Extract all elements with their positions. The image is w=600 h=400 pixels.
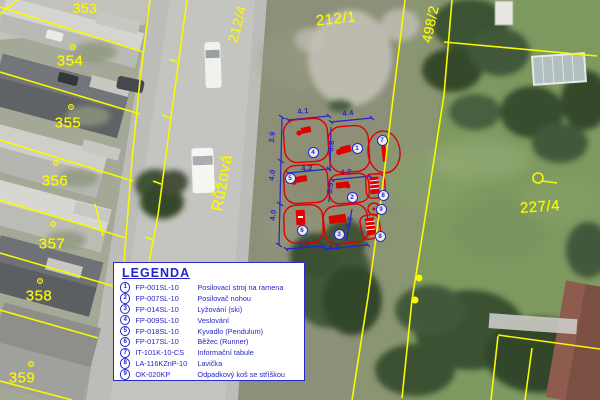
dimension-label: 4.0	[267, 169, 277, 181]
legend-item-number: 4	[120, 315, 130, 325]
parcel-centroid-dot	[39, 280, 40, 281]
parcel-line	[124, 0, 150, 262]
legend-item-number: 7	[120, 348, 130, 358]
legend-item-number: 9	[120, 369, 130, 379]
parcel-label-356: 356	[42, 173, 69, 190]
parcel-centroid-dot	[55, 162, 56, 163]
parcel-centroid-dot	[70, 106, 71, 107]
parcel-line	[0, 310, 98, 338]
map-item-number-9: 9	[376, 204, 387, 215]
parcel-label-359: 359	[9, 370, 36, 387]
dimension-label: 4.4	[342, 108, 354, 118]
dimension-label: 3.8	[326, 140, 336, 152]
map-item-number-1: 1	[352, 143, 363, 154]
boundary-point-dot	[416, 275, 423, 282]
parcel-line	[444, 42, 597, 56]
legend-item-number: 5	[120, 326, 130, 336]
legend-item-code: FP-014SL-10	[135, 305, 197, 314]
road-curb-line	[149, 0, 187, 263]
parcel-label-358: 358	[26, 288, 53, 305]
map-item-number-4: 4	[308, 147, 319, 158]
legend-row: 1FP-001SL-10Posilovací stroj na ramena	[120, 282, 304, 293]
legend-item-number: 6	[120, 337, 130, 347]
cadastral-map-view[interactable]: LEGENDA 1FP-001SL-10Posilovací stroj na …	[0, 0, 600, 400]
parcel-line	[0, 200, 126, 238]
dimension-label: 4.1	[297, 106, 309, 116]
parcel-label-357: 357	[39, 236, 66, 253]
parcel-line	[0, 72, 140, 114]
map-item-number-8: 8	[378, 190, 389, 201]
legend-item-desc: Kyvadlo (Pendulum)	[197, 327, 304, 336]
legend-item-desc: Lyžování (ski)	[197, 305, 304, 314]
parcel-centroid-dot	[52, 223, 53, 224]
legend-item-code: OK-020KP	[135, 370, 197, 379]
legend-item-number: 3	[120, 304, 130, 314]
dimension-label: 4.2	[340, 167, 352, 177]
parcel-label-354: 354	[57, 53, 84, 70]
parcel-line	[491, 336, 498, 400]
legend-panel: LEGENDA 1FP-001SL-10Posilovací stroj na …	[113, 262, 305, 381]
parcel-line	[352, 0, 405, 400]
map-item-number-8: 8	[375, 231, 386, 242]
legend-item-desc: Posilovač nohou	[197, 294, 304, 303]
legend-row: 6FP-017SL-10Běžec (Runner)	[120, 336, 304, 347]
legend-item-desc: Informační tabule	[197, 348, 304, 357]
legend-row: 5FP-018SL-10Kyvadlo (Pendulum)	[120, 326, 304, 337]
legend-item-code: LA-116KZnP-10	[135, 359, 197, 368]
legend-item-code: IT-101K-10-CS	[135, 348, 197, 357]
dimension-label: 3.9	[267, 131, 277, 143]
legend-row: 8LA-116KZnP-10Lavička	[120, 358, 304, 369]
legend-item-desc: Posilovací stroj na ramena	[197, 283, 304, 292]
legend-item-desc: Veslování	[197, 316, 304, 325]
map-item-number-7: 7	[377, 135, 388, 146]
legend-item-desc: Lavička	[197, 359, 304, 368]
parcel-label-353: 353	[73, 0, 98, 16]
curb-ticks	[145, 59, 177, 240]
parcel-label-227/4: 227/4	[519, 197, 560, 217]
parcel-line	[95, 204, 103, 236]
legend-title: LEGENDA	[122, 266, 304, 280]
legend-row: 7IT-101K-10-CSInformační tabule	[120, 347, 304, 358]
legend-item-code: FP-001SL-10	[135, 283, 197, 292]
dimension-label: 4.3	[328, 242, 340, 252]
map-item-number-5: 5	[285, 173, 296, 184]
map-item-number-3: 3	[334, 229, 345, 240]
dimension-label: 3.5	[298, 239, 310, 249]
legend-item-desc: Odpadkový koš se stříškou	[197, 370, 304, 379]
legend-rows: 1FP-001SL-10Posilovací stroj na ramena2F…	[120, 282, 304, 380]
map-item-number-2: 2	[347, 192, 358, 203]
legend-item-code: FP-017SL-10	[135, 337, 197, 346]
legend-item-number: 8	[120, 358, 130, 368]
legend-item-number: 2	[120, 293, 130, 303]
legend-item-desc: Běžec (Runner)	[197, 337, 304, 346]
legend-item-number: 1	[120, 282, 130, 292]
parcel-label-355: 355	[55, 115, 82, 132]
parcel-line	[0, 253, 113, 286]
map-item-number-6: 6	[297, 225, 308, 236]
legend-item-code: FP-007SL-10	[135, 294, 197, 303]
legend-item-code: FP-018SL-10	[135, 327, 197, 336]
parcel-line	[402, 0, 452, 398]
parcel-line	[498, 335, 600, 349]
dimension-label: 4.2	[301, 163, 313, 173]
legend-row: 3FP-014SL-10Lyžování (ski)	[120, 304, 304, 315]
boundary-point-dot	[412, 297, 419, 304]
dimension-label: 3.5	[325, 182, 335, 194]
legend-item-code: FP-009SL-10	[135, 316, 197, 325]
parcel-centroid-dot	[72, 46, 73, 47]
well-symbol	[533, 173, 557, 183]
parcel-line	[525, 348, 532, 400]
parcel-centroid-dot	[30, 363, 31, 364]
legend-row: 4FP-009SL-10Veslování	[120, 315, 304, 326]
legend-row: 2FP-007SL-10Posilovač nohou	[120, 293, 304, 304]
dimension-label: 4.0	[268, 209, 278, 221]
legend-row: 9OK-020KPOdpadkový koš se stříškou	[120, 369, 304, 380]
